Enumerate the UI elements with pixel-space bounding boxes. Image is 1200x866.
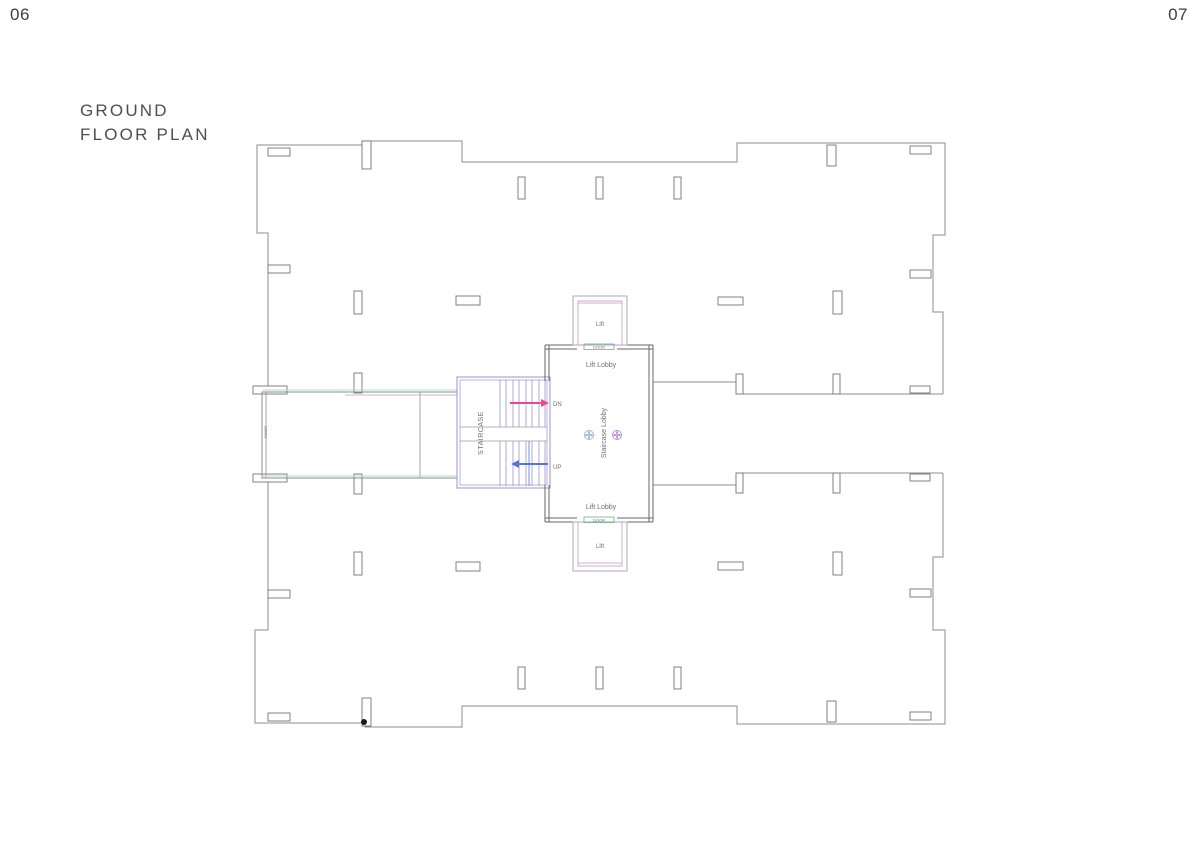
column	[596, 667, 603, 689]
column	[833, 473, 840, 493]
column	[833, 552, 842, 575]
column	[718, 562, 743, 570]
column	[456, 296, 480, 305]
column	[910, 589, 931, 597]
stair-landing	[460, 427, 547, 441]
up-arrow-head	[511, 460, 519, 468]
marker-dot	[590, 434, 592, 436]
stair-treads	[500, 380, 545, 486]
column	[518, 177, 525, 199]
column	[362, 141, 371, 169]
column	[833, 291, 842, 314]
door-top-label: DOOR	[593, 345, 605, 350]
right-corridor-walls	[653, 382, 943, 485]
column	[268, 148, 290, 156]
entrance-corridor: DOOR	[262, 390, 457, 478]
door-left-label: DOOR	[263, 426, 268, 438]
column	[674, 667, 681, 689]
door-bottom-label: DOOR	[593, 518, 605, 523]
column	[354, 552, 362, 575]
column	[354, 474, 362, 494]
staircase-inner-outline	[460, 380, 547, 485]
columns	[253, 141, 931, 726]
column	[736, 473, 743, 493]
staircase-outline	[457, 377, 550, 488]
column	[736, 374, 743, 394]
column	[827, 145, 836, 166]
grid-marker-blue	[585, 431, 594, 440]
staircase-lobby-label: Staircase Lobby	[601, 407, 608, 458]
column	[833, 374, 840, 394]
floor-plan-drawing: DOOR	[0, 0, 1200, 866]
column	[910, 474, 930, 481]
column	[354, 291, 362, 314]
column	[456, 562, 480, 571]
column	[268, 590, 290, 598]
lift-bottom-label: Lift	[596, 544, 604, 550]
lift-lobby-top-label: Lift Lobby	[586, 362, 617, 369]
column	[910, 712, 931, 720]
marker-dot	[588, 436, 590, 438]
column	[268, 713, 290, 721]
column	[910, 270, 931, 278]
marker-dot	[614, 434, 616, 436]
column	[674, 177, 681, 199]
staircase: STAIRCASE	[457, 377, 550, 488]
marker-dot	[616, 432, 618, 434]
column	[827, 701, 836, 722]
staircase-label: STAIRCASE	[478, 411, 485, 455]
stair-down-arrow	[510, 399, 549, 407]
column	[268, 265, 290, 273]
column	[718, 297, 743, 305]
corridor-guide-teal	[263, 390, 457, 476]
marker-dot	[618, 434, 620, 436]
staircase-lobby	[545, 345, 653, 522]
survey-point-dot	[361, 719, 367, 725]
lift-lobby-bottom-label: Lift Lobby	[586, 504, 617, 511]
lift-top-label: Lift	[596, 322, 604, 328]
stair-up-arrow	[511, 441, 548, 486]
column	[596, 177, 603, 199]
building-outline	[255, 141, 945, 727]
grid-marker-purple	[613, 431, 622, 440]
column	[910, 146, 931, 154]
marker-dot	[586, 434, 588, 436]
column	[910, 386, 930, 393]
corridor-outline	[262, 392, 457, 478]
dn-label: DN	[553, 402, 562, 408]
marker-dot	[588, 432, 590, 434]
column	[518, 667, 525, 689]
up-label: UP	[553, 465, 561, 471]
lift-shaft-top	[573, 296, 627, 345]
marker-dot	[616, 436, 618, 438]
